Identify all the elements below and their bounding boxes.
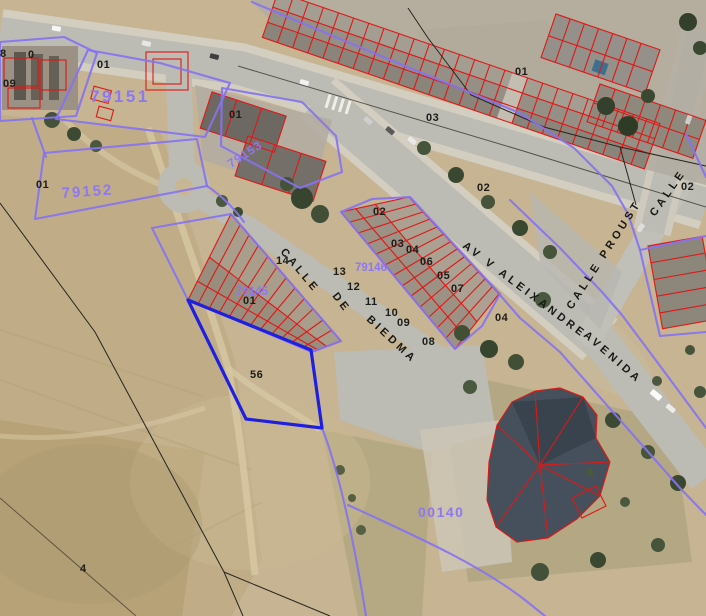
parcel-number: 11: [365, 296, 378, 308]
parcel-number: 04: [495, 312, 509, 324]
parcel-number: 4: [80, 563, 87, 575]
parcel-number: 03: [426, 112, 439, 124]
parcel-number: 09: [397, 317, 410, 329]
parcel-number: 56: [250, 369, 263, 381]
parcel-number: 09: [3, 78, 16, 90]
parcel-number: 01: [515, 66, 528, 78]
parcel-number: 01: [36, 179, 49, 191]
roundabout-island: [175, 178, 193, 196]
parcel-number: 13: [333, 266, 346, 278]
parcel-number: 05: [437, 270, 450, 282]
block-label-79152: 79152: [61, 181, 114, 202]
parcel-number: 03: [391, 238, 404, 250]
parcel-number: 07: [451, 283, 464, 295]
parcel-number: 0: [28, 49, 35, 61]
block-label-00140: 00140: [418, 504, 464, 520]
parcel-number: 12: [347, 281, 360, 293]
parcel-number: 02: [373, 206, 386, 218]
parcel-number: 02: [477, 182, 490, 194]
cadastral-map-viewport[interactable]: 79151 79152 79153 79145 79146 00140 CALL…: [0, 0, 706, 616]
parcel-number: 02: [681, 181, 694, 193]
parcel-number: 01: [229, 109, 242, 121]
parcel-number: 8: [0, 48, 7, 60]
parcel-number: 01: [243, 295, 256, 307]
parcel-number: 08: [422, 336, 435, 348]
block-label-79146: 79146: [355, 262, 387, 274]
parcel-number: 14: [276, 255, 290, 267]
parcel-number: 01: [97, 59, 110, 71]
parcel-number: 04: [406, 244, 420, 256]
parcel-number: 06: [420, 256, 433, 268]
block-label-79151: 79151: [90, 87, 150, 106]
